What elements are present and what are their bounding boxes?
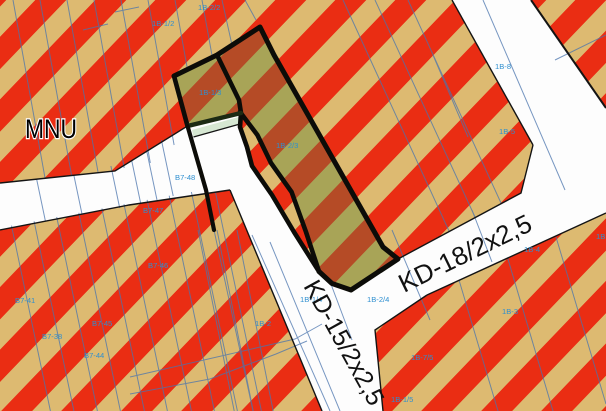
svg-text:1B-2/4: 1B-2/4 [367, 295, 389, 304]
svg-text:1B-3: 1B-3 [502, 307, 518, 316]
svg-text:1B: 1B [596, 232, 605, 241]
svg-text:1B-8: 1B-8 [495, 62, 511, 71]
svg-text:1B-1/5: 1B-1/5 [391, 395, 413, 404]
svg-text:B7-48: B7-48 [175, 173, 195, 182]
svg-text:1B-2: 1B-2 [255, 319, 271, 328]
svg-text:1B-4: 1B-4 [524, 245, 540, 254]
svg-text:1B-2/3: 1B-2/3 [276, 141, 298, 150]
svg-text:1B-7/5: 1B-7/5 [411, 353, 433, 362]
svg-text:MNU: MNU [25, 114, 77, 144]
svg-text:B7-45: B7-45 [92, 319, 112, 328]
svg-text:1B-5: 1B-5 [499, 127, 515, 136]
svg-text:B7-38: B7-38 [42, 332, 62, 341]
svg-text:1B-2/2: 1B-2/2 [198, 3, 220, 12]
svg-text:1B-1/3: 1B-1/3 [199, 88, 221, 97]
svg-text:B7-41: B7-41 [15, 296, 35, 305]
svg-text:B7-46: B7-46 [148, 261, 168, 270]
svg-text:1B-1/2: 1B-1/2 [152, 19, 174, 28]
svg-text:B7-47: B7-47 [143, 206, 163, 215]
svg-text:B7-44: B7-44 [84, 351, 104, 360]
